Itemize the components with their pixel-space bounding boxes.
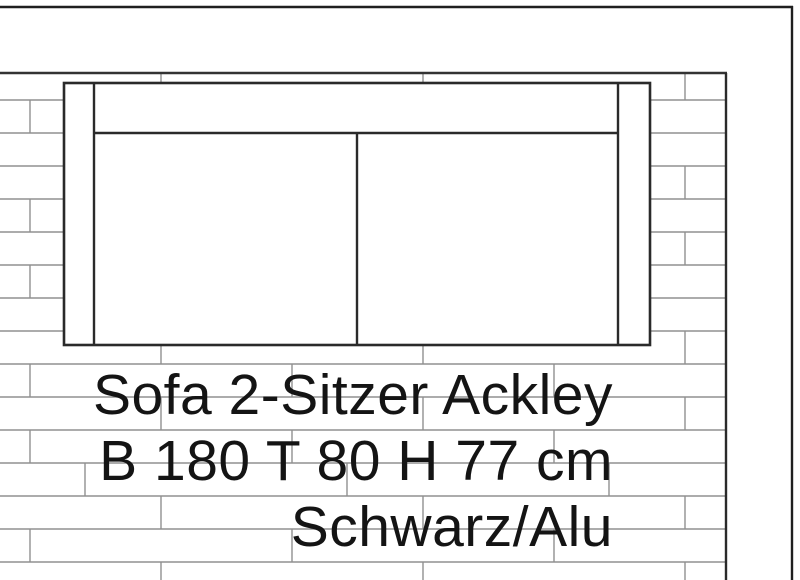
product-dimensions-label: B 180 T 80 H 77 cm [93,428,613,494]
product-name-label: Sofa 2-Sitzer Ackley [93,362,613,428]
product-color-label: Schwarz/Alu [93,494,613,560]
product-annotation: Sofa 2-Sitzer Ackley B 180 T 80 H 77 cm … [93,362,613,560]
sofa-top-view [64,83,650,345]
floor-plan-canvas: Sofa 2-Sitzer Ackley B 180 T 80 H 77 cm … [0,0,800,580]
